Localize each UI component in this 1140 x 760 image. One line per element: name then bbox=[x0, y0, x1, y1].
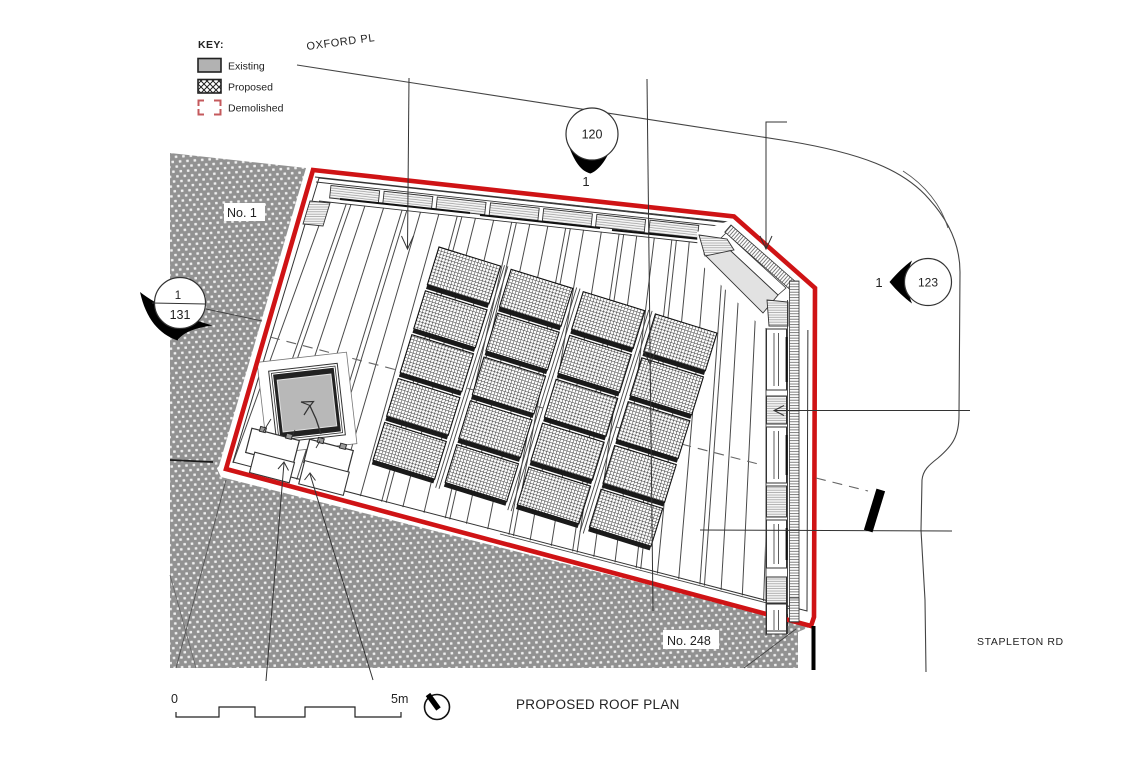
svg-text:1: 1 bbox=[582, 174, 589, 189]
svg-text:131: 131 bbox=[170, 308, 191, 322]
svg-text:Existing: Existing bbox=[228, 61, 265, 73]
svg-text:PROPOSED ROOF PLAN: PROPOSED ROOF PLAN bbox=[516, 697, 680, 712]
svg-text:0: 0 bbox=[171, 692, 178, 706]
svg-text:Demolished: Demolished bbox=[228, 103, 284, 115]
svg-text:No. 1: No. 1 bbox=[227, 206, 257, 220]
svg-text:Proposed: Proposed bbox=[228, 82, 273, 94]
svg-text:120: 120 bbox=[582, 128, 603, 142]
svg-text:5m: 5m bbox=[391, 692, 408, 706]
svg-text:123: 123 bbox=[918, 276, 938, 290]
svg-text:1: 1 bbox=[175, 290, 181, 302]
svg-text:No. 248: No. 248 bbox=[667, 634, 711, 648]
svg-text:STAPLETON RD: STAPLETON RD bbox=[977, 636, 1064, 648]
svg-text:1: 1 bbox=[875, 275, 882, 290]
svg-text:KEY:: KEY: bbox=[198, 39, 224, 51]
